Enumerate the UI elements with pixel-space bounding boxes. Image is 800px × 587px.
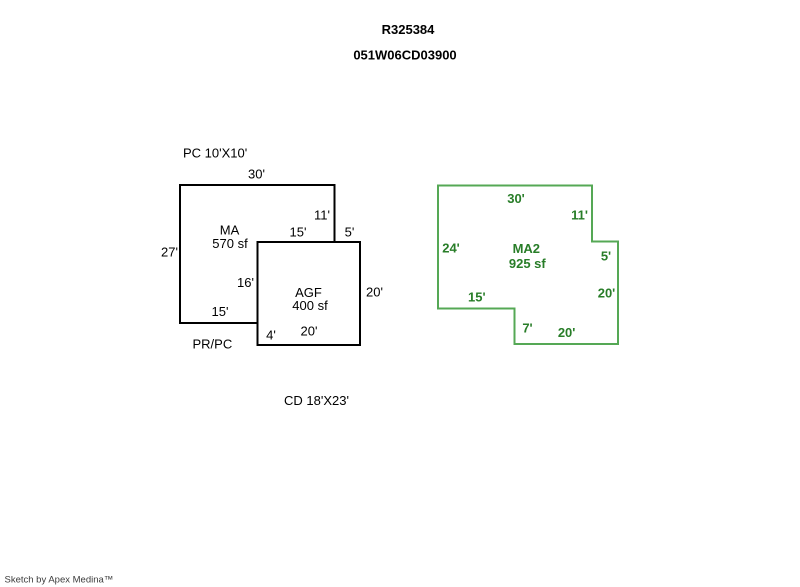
svg-text:925 sf: 925 sf bbox=[509, 256, 547, 271]
svg-text:30': 30' bbox=[248, 167, 265, 182]
svg-text:20': 20' bbox=[366, 285, 383, 300]
svg-text:R325384: R325384 bbox=[382, 22, 436, 37]
svg-text:Sketch by Apex Medina™: Sketch by Apex Medina™ bbox=[5, 575, 114, 586]
svg-text:051W06CD03900: 051W06CD03900 bbox=[353, 48, 456, 63]
svg-text:MA2: MA2 bbox=[513, 241, 540, 256]
svg-text:4': 4' bbox=[266, 328, 276, 343]
svg-text:16': 16' bbox=[237, 275, 254, 290]
svg-text:30': 30' bbox=[507, 191, 525, 206]
svg-text:7': 7' bbox=[522, 321, 532, 336]
svg-text:570 sf: 570 sf bbox=[212, 236, 248, 251]
svg-text:27': 27' bbox=[161, 245, 178, 260]
svg-text:15': 15' bbox=[212, 304, 229, 319]
svg-text:20': 20' bbox=[301, 324, 318, 339]
svg-text:20': 20' bbox=[598, 286, 616, 301]
svg-text:15': 15' bbox=[468, 290, 486, 305]
svg-text:400 sf: 400 sf bbox=[292, 298, 328, 313]
svg-text:5': 5' bbox=[345, 225, 355, 240]
svg-text:20': 20' bbox=[558, 325, 576, 340]
svg-text:11': 11' bbox=[571, 208, 588, 223]
svg-text:11': 11' bbox=[314, 208, 330, 223]
svg-text:PC 10'X10': PC 10'X10' bbox=[183, 146, 247, 161]
svg-text:CD 18'X23': CD 18'X23' bbox=[284, 393, 349, 408]
svg-text:PR/PC: PR/PC bbox=[193, 337, 233, 352]
svg-text:15': 15' bbox=[290, 225, 307, 240]
svg-text:5': 5' bbox=[601, 249, 611, 264]
svg-text:24': 24' bbox=[442, 241, 460, 256]
